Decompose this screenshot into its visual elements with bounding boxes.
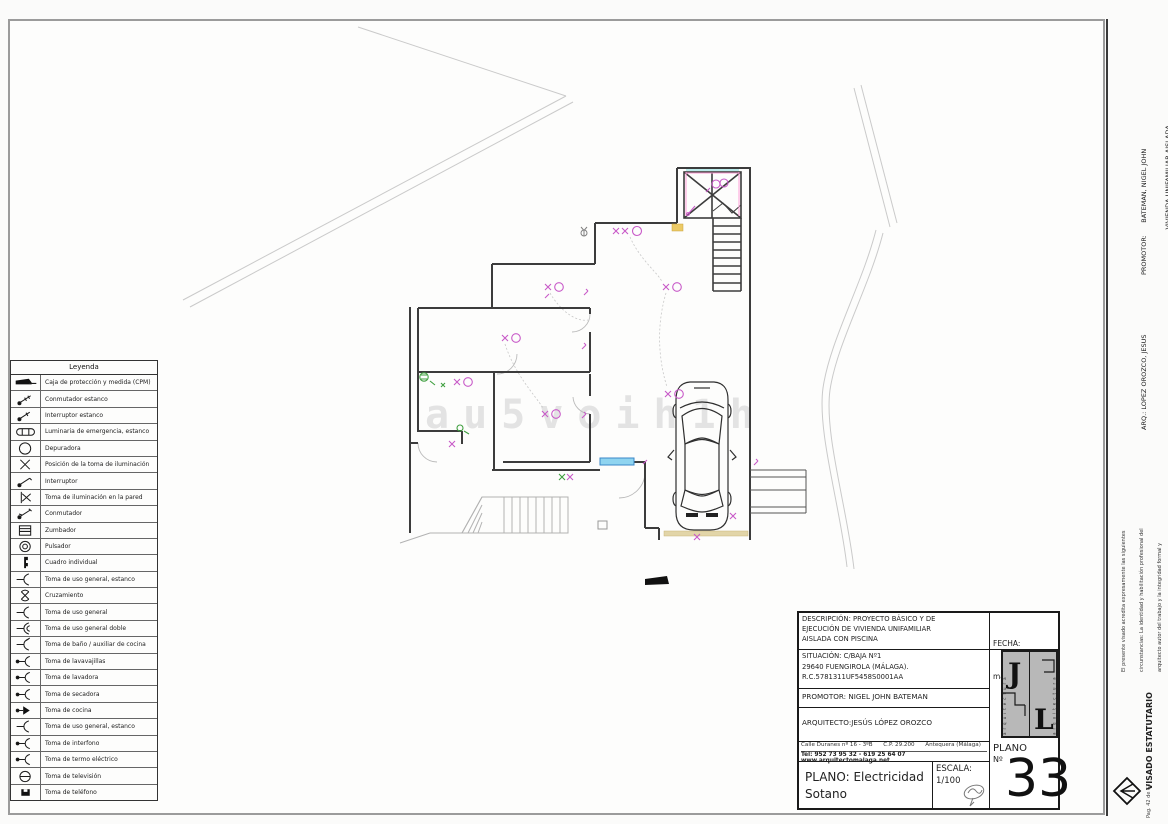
legend-item-label: Toma de lavavajillas	[41, 658, 105, 665]
legend-item-label: Toma de uso general doble	[41, 625, 126, 632]
legend-row: Toma de uso general doble	[11, 620, 157, 636]
page-count-note: Pag. 42 de 63	[1146, 770, 1152, 818]
basement-window	[600, 458, 634, 465]
exterior-stair-outline	[400, 497, 568, 543]
plan-number-no: Nº	[993, 755, 1003, 764]
legend-symbol-icon	[11, 490, 41, 505]
legend-item-label: Depuradora	[41, 445, 81, 452]
legend-row: Toma de uso general, estanco	[11, 718, 157, 734]
location-field: SITUACIÓN: C/BAJA Nº1 29640 FUENGIROLA (…	[799, 649, 989, 688]
legend-row: Interruptor	[11, 472, 157, 488]
legend-item-label: Interruptor estanco	[41, 412, 103, 419]
legend-row: Toma de secadora	[11, 685, 157, 701]
plan-number-cell: PLANO Nº 33	[989, 741, 1060, 810]
legend-item-label: Toma de termo eléctrico	[41, 756, 118, 763]
legend-item-label: Toma de lavadora	[41, 674, 98, 681]
legend-row: Conmutador	[11, 505, 157, 521]
plan-number-value: 33	[1005, 749, 1071, 809]
legend-item-label: Luminaria de emergencia, estanco	[41, 428, 149, 435]
promoter-field: PROMOTOR: NIGEL JOHN BATEMAN	[799, 688, 989, 707]
legend-row: Toma de uso general, estanco	[11, 571, 157, 587]
legend-symbol-icon	[11, 391, 41, 406]
legend-item-label: Toma de uso general, estanco	[41, 723, 135, 730]
garage-door-sill	[664, 531, 748, 536]
description-field: DESCRIPCIÓN: PROYECTO BÁSICO Y DE EJECUC…	[799, 613, 989, 649]
legend-symbol-icon	[11, 588, 41, 603]
floor-drain-detail	[598, 521, 607, 529]
legend-symbol-icon	[11, 523, 41, 538]
legend-symbol-icon	[11, 539, 41, 554]
legend-symbol-icon	[11, 736, 41, 751]
legend-symbol-icon	[11, 604, 41, 619]
legend-symbol-icon	[11, 670, 41, 685]
car-top-view	[668, 382, 736, 530]
switch-symbols-green	[420, 373, 565, 480]
svg-text:arquitectura: arquitectura	[1052, 674, 1057, 735]
legend-row: Interruptor estanco	[11, 407, 157, 423]
legend-row: Caja de protección y medida (CPM)	[11, 375, 157, 390]
legend-item-label: Pulsador	[41, 543, 71, 550]
cpm-box-symbol	[645, 576, 669, 585]
legend-symbol-icon	[11, 408, 41, 423]
crossover-symbol	[581, 227, 587, 236]
legend-row: Toma de iluminación en la pared	[11, 489, 157, 505]
signature-stamp-doodle	[961, 781, 989, 809]
legend-row: Toma de uso general	[11, 603, 157, 619]
legend-symbol-icon	[11, 768, 41, 783]
legend-symbol-icon	[11, 555, 41, 570]
legend-row: Toma de baño / auxiliar de cocina	[11, 636, 157, 652]
legend-row: Toma de lavadora	[11, 669, 157, 685]
legend-row: Cuadro individual	[11, 554, 157, 570]
legend-row: Pulsador	[11, 538, 157, 554]
legend-symbol-icon	[11, 441, 41, 456]
plot-boundary-lines	[183, 27, 897, 569]
building-walls	[410, 168, 750, 540]
legend-row: Toma de cocina	[11, 702, 157, 718]
legend-title: Leyenda	[11, 361, 157, 375]
legend-item-label: Interruptor	[41, 478, 78, 485]
legend-row: Zumbador	[11, 522, 157, 538]
title-block: DESCRIPCIÓN: PROYECTO BÁSICO Y DE EJECUC…	[797, 611, 1060, 810]
legend-item-label: Cuadro individual	[41, 559, 98, 566]
legend-item-label: Toma de interfono	[41, 740, 99, 747]
interior-staircase	[684, 172, 741, 291]
legend-symbol-icon	[11, 637, 41, 652]
legend-row: Toma de teléfono	[11, 784, 157, 800]
legend-item-label: Toma de televisión	[41, 773, 101, 780]
legend-row: Luminaria de emergencia, estanco	[11, 423, 157, 439]
svg-text:J: J	[1005, 657, 1021, 690]
legend-symbol-icon	[11, 703, 41, 718]
lighting-symbols-magenta	[449, 179, 758, 540]
legend-symbol-icon	[11, 457, 41, 472]
legend-row: Posición de la toma de iluminación	[11, 456, 157, 472]
legend-symbol-icon	[11, 719, 41, 734]
legend-symbol-icon	[11, 785, 41, 800]
legend-item-label: Conmutador	[41, 510, 82, 517]
legend-item-label: Cruzamiento	[41, 592, 83, 599]
legend-item-label: Toma de cocina	[41, 707, 92, 714]
sidebar-promoter-text: PROMOTOR: BATEMAN, NIGEL JOHN VIVIENDA U…	[1124, 105, 1168, 275]
legend-symbol-icon	[11, 506, 41, 521]
architect-logo: J L arquitectura arquitectura	[1001, 650, 1058, 738]
architect-field: ARQUITECTO:JESÚS LÓPEZ OROZCO	[799, 707, 989, 741]
legend-item-label: Toma de uso general	[41, 609, 107, 616]
drawing-sheet-page: { "legend": { "title": "Leyenda", "items…	[0, 0, 1168, 824]
legend-row: Depuradora	[11, 440, 157, 456]
legend-item-label: Conmutador estanco	[41, 396, 108, 403]
legend-symbol-icon	[11, 572, 41, 587]
legend-item-label: Toma de baño / auxiliar de cocina	[41, 641, 146, 648]
colegio-stamp-icon	[1112, 776, 1142, 806]
legend-symbol-icon	[11, 424, 41, 439]
office-phone-web: Tel: 952 73 95 32 - 619 25 64 07 www.arq…	[799, 751, 985, 761]
legend-item-label: Toma de uso general, estanco	[41, 576, 135, 583]
legend-item-label: Zumbador	[41, 527, 76, 534]
legend-item-label: Toma de teléfono	[41, 789, 97, 796]
legend-symbol-icon	[11, 375, 41, 390]
floorplan-drawing	[150, 25, 1100, 615]
legend-item-label: Toma de secadora	[41, 691, 100, 698]
legend-row: Toma de interfono	[11, 735, 157, 751]
legend-row: Toma de termo eléctrico	[11, 751, 157, 767]
wiring-curves	[505, 237, 667, 408]
legend-symbol-icon	[11, 752, 41, 767]
svg-text:arquitectura: arquitectura	[1002, 674, 1007, 735]
terrace-steps	[750, 470, 806, 513]
legend-row: Toma de lavavajillas	[11, 653, 157, 669]
legend-row: Conmutador estanco	[11, 390, 157, 406]
legend-symbol-icon	[11, 686, 41, 701]
legend-panel: Leyenda Caja de protección y medida (CPM…	[10, 360, 158, 801]
sidebar-architect-text: ARQ.: LOPEZ OROZCO, JESUS	[1124, 330, 1156, 430]
highlight-marker	[672, 224, 683, 231]
date-field: FECHA: mayo 2024	[989, 613, 1058, 649]
legend-symbol-icon	[11, 621, 41, 636]
legend-item-label: Caja de protección y medida (CPM)	[41, 379, 151, 386]
legend-symbol-icon	[11, 473, 41, 488]
legend-symbol-icon	[11, 654, 41, 669]
plan-title-field: PLANO: Electricidad Sotano	[799, 761, 932, 810]
legend-row: Toma de televisión	[11, 767, 157, 783]
legend-item-label: Toma de iluminación en la pared	[41, 494, 143, 501]
visado-stamp-text: VISADO ESTATUTARIO 28/06/2024 - Nº Expte…	[1131, 638, 1168, 790]
office-address: Calle Duranes nº 16 - 3ºB C.P. 29.200 An…	[799, 741, 985, 751]
legend-row: Cruzamiento	[11, 587, 157, 603]
legend-item-label: Posición de la toma de iluminación	[41, 461, 149, 468]
